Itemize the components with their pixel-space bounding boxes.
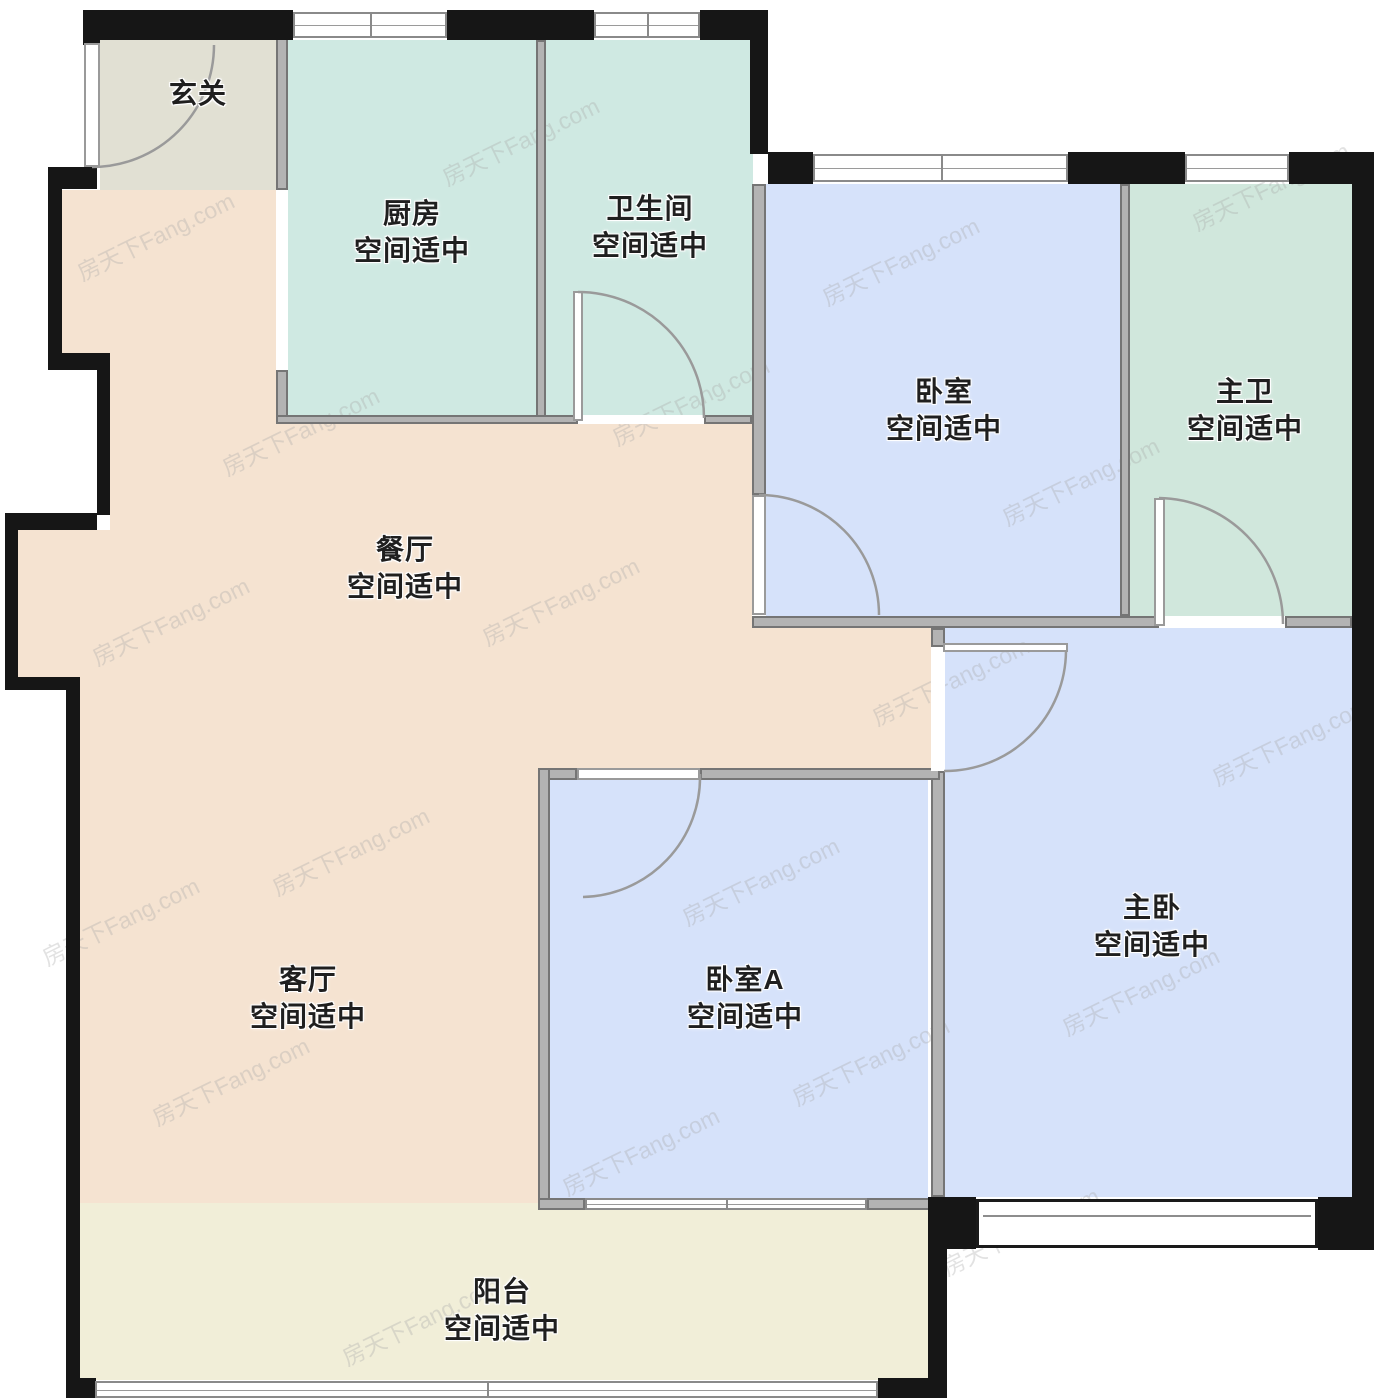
door-leaf-bathroom [573,291,583,421]
exterior-wall [83,10,100,45]
bay-window [976,1199,1318,1248]
window-pane-divider [370,14,372,36]
room-dining-living-fill [110,353,276,423]
interior-wall [867,1198,931,1210]
door-opening-master-bath [1159,616,1285,628]
room-label-bedroom-a-size: 空间适中 [687,995,803,1035]
interior-wall [538,768,550,1210]
exterior-wall [768,152,813,184]
door-opening-master [931,647,945,771]
room-label-living-size: 空间适中 [250,995,366,1035]
room-label-master-bath-name: 主卫 [1216,370,1274,410]
window [95,1381,878,1398]
exterior-wall [1352,152,1374,1214]
interior-wall [536,40,546,423]
exterior-wall [66,677,80,1380]
interior-wall [752,184,766,495]
room-label-balcony-name: 阳台 [473,1270,531,1310]
exterior-wall [83,10,293,40]
interior-wall [704,415,752,424]
room-label-foyer-name: 玄关 [169,72,227,112]
room-label-bathroom-size: 空间适中 [592,224,708,264]
room-label-bedroom-size: 空间适中 [886,407,1002,447]
window-pane-divider [647,14,649,36]
bay-window-glass-line [983,1215,1311,1217]
door-leaf-entrance [84,43,100,167]
exterior-wall [1318,1197,1374,1250]
floor-plan: 房天下Fang.com房天下Fang.com房天下Fang.com房天下Fang… [0,0,1374,1400]
exterior-wall [66,1378,96,1398]
window [813,154,1068,182]
window-pane-divider [726,1200,728,1208]
window-pane-divider [487,1383,489,1396]
window-pane-divider [941,156,943,180]
window-glass-line [1187,168,1287,169]
room-label-bathroom-name: 卫生间 [606,187,693,227]
door-leaf-bedroom [752,495,766,615]
exterior-wall [878,1378,928,1398]
room-label-balcony-size: 空间适中 [444,1307,560,1347]
window [594,12,700,38]
interior-wall [931,771,945,1197]
room-label-master-bedroom-size: 空间适中 [1094,923,1210,963]
interior-wall [1120,184,1130,616]
room-label-bedroom-a-name: 卧室A [705,958,784,998]
interior-wall [276,415,578,424]
room-label-master-bedroom-name: 主卧 [1123,886,1181,926]
interior-wall [700,768,940,780]
room-foyer-fill [100,40,276,190]
room-label-dining-name: 餐厅 [376,528,434,568]
exterior-wall [97,353,110,515]
exterior-wall [48,167,62,357]
door-leaf-master-bath [1154,498,1165,626]
room-label-dining-size: 空间适中 [347,565,463,605]
door-opening-bathroom [578,415,704,424]
interior-wall [538,1198,585,1210]
exterior-wall [700,10,768,40]
room-dining-living-fill [110,423,752,530]
exterior-wall [750,38,768,154]
room-dining-living-fill [78,677,538,1203]
exterior-wall [5,513,97,530]
exterior-wall [928,1197,976,1249]
window [585,1198,867,1210]
room-label-master-bath-size: 空间适中 [1187,407,1303,447]
exterior-wall [447,10,594,40]
window [1185,154,1289,182]
interior-wall [752,616,1159,628]
room-label-bedroom-name: 卧室 [915,370,973,410]
exterior-wall [928,1249,947,1398]
window [293,12,447,38]
door-leaf-master [943,643,1068,652]
interior-wall [1285,616,1352,628]
room-label-kitchen-name: 厨房 [383,192,441,232]
room-label-kitchen-size: 空间适中 [354,229,470,269]
door-leaf-bedroom-a [577,768,700,780]
room-label-living-name: 客厅 [279,958,337,998]
room-dining-living-fill [538,677,931,768]
exterior-wall [5,513,18,681]
exterior-wall [1068,152,1185,184]
interior-wall [276,30,288,190]
